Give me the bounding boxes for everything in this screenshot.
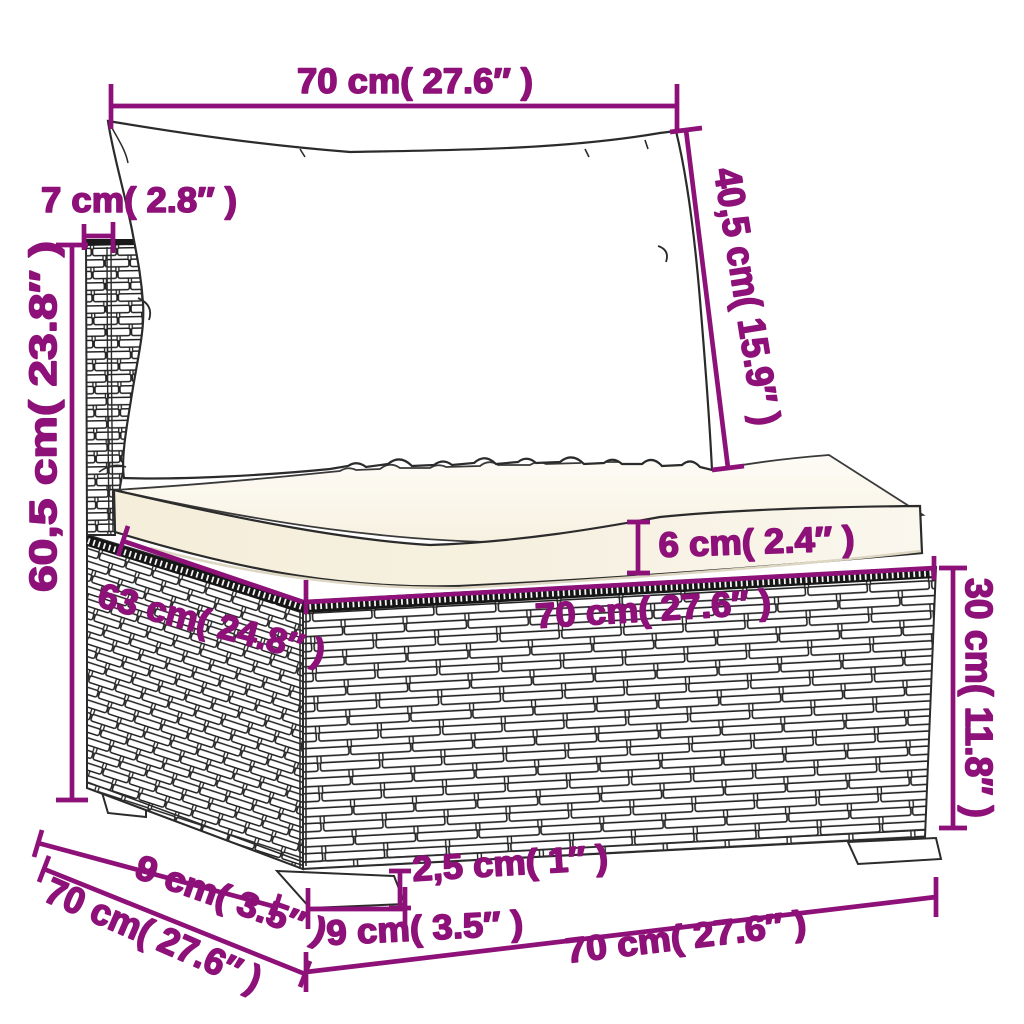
svg-text:7 cm( 2.8″ ): 7 cm( 2.8″ ) (41, 181, 237, 220)
svg-text:6 cm( 2.4″ ): 6 cm( 2.4″ ) (658, 519, 855, 565)
svg-text:60,5 cm( 23.8″ ): 60,5 cm( 23.8″ ) (23, 241, 65, 592)
svg-text:30 cm( 11.8″ ): 30 cm( 11.8″ ) (957, 578, 999, 818)
svg-text:70 cm( 27.6″ ): 70 cm( 27.6″ ) (297, 62, 533, 101)
